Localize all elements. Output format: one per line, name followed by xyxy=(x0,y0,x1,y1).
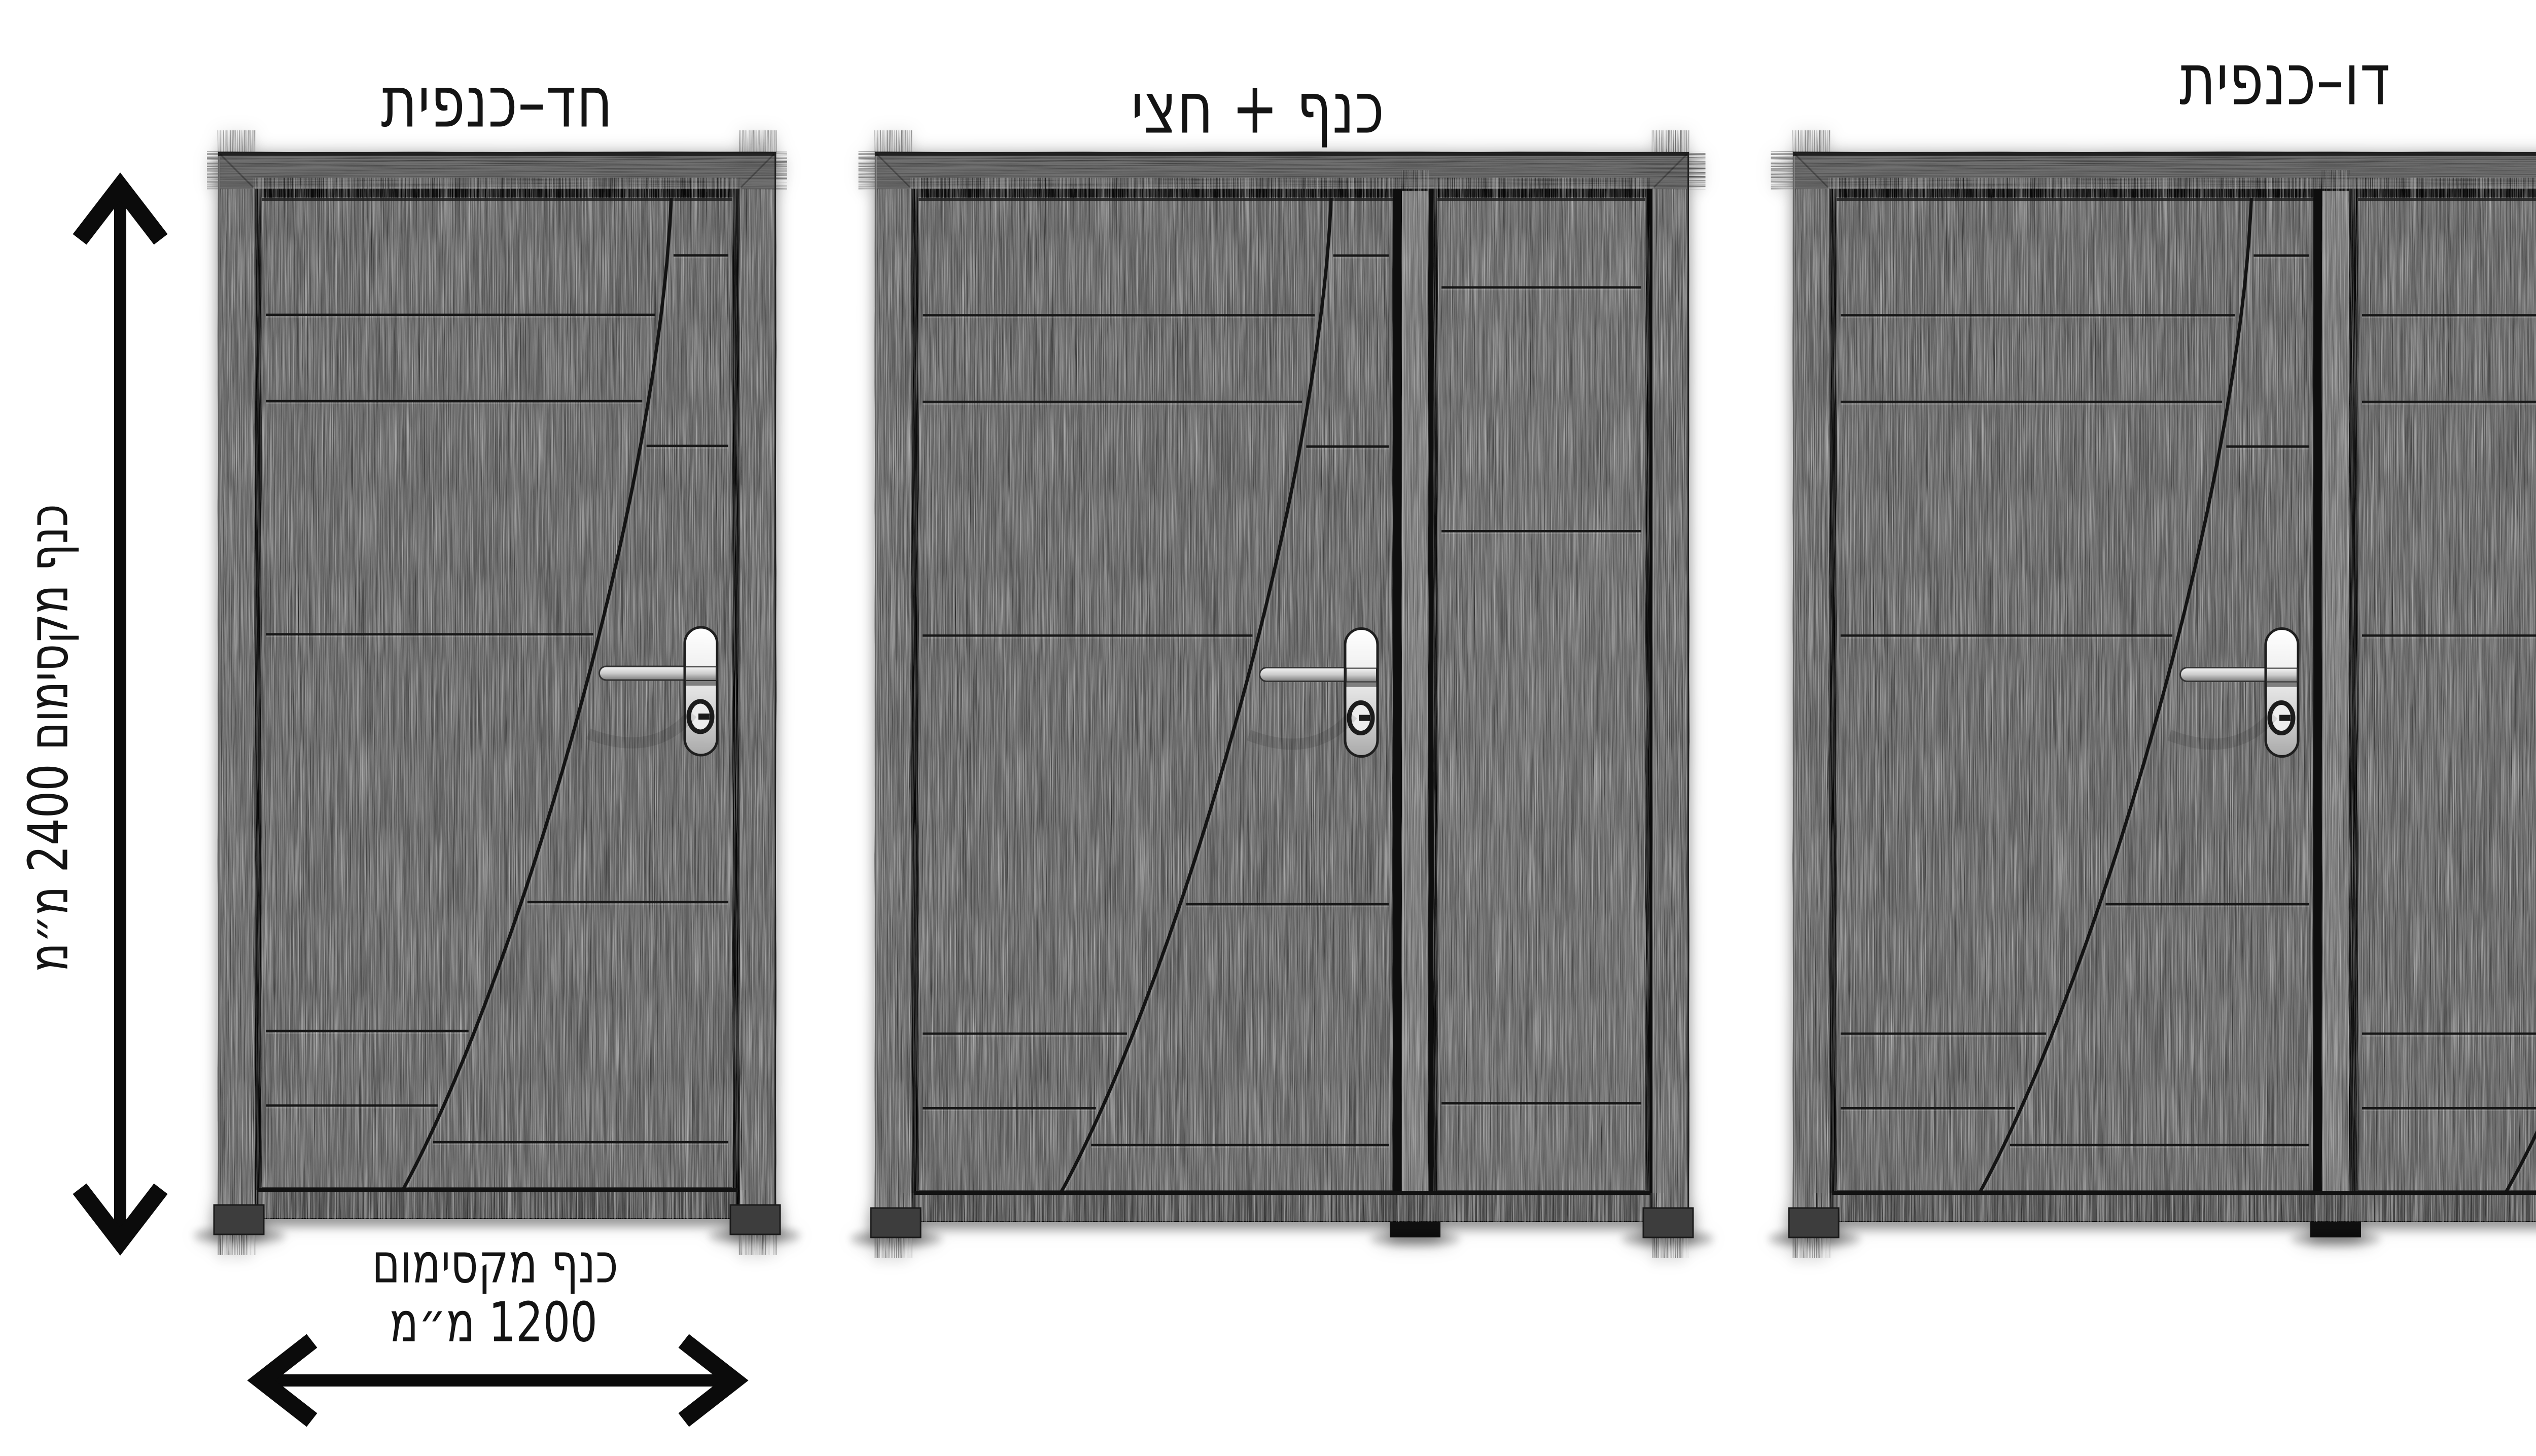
height-dimension-arrow-icon xyxy=(64,171,176,1257)
handle-lever xyxy=(2180,668,2272,682)
frame-foot xyxy=(1643,1208,1693,1237)
label-single-wing: חד–כנפית xyxy=(381,61,613,144)
door-leaf-main xyxy=(919,198,1393,1193)
door-leaf-main xyxy=(1837,198,2313,1193)
frame-foot xyxy=(214,1205,264,1234)
label-max-leaf-width-line1: כנף מקסימום xyxy=(372,1232,618,1296)
width-dimension-arrow-icon xyxy=(246,1326,750,1435)
door-assembly-single-wing xyxy=(218,152,776,1234)
door-leaf-half xyxy=(1437,198,1645,1193)
door-configurations-diagram: חד–כנפית כנף + חצי דו–כנפית כנף מקסימום … xyxy=(0,0,2536,1456)
handle-plate xyxy=(685,627,717,755)
door-leaf-main xyxy=(262,198,732,1190)
frame-foot xyxy=(1789,1208,1839,1237)
label-double-wing: דו–כנפית xyxy=(2179,39,2390,122)
door-assembly-wing-and-half xyxy=(875,152,1689,1237)
door-assembly-double-wing xyxy=(1793,152,2536,1237)
handle-lever xyxy=(1260,668,1351,682)
label-wing-and-half: כנף + חצי xyxy=(1131,67,1385,150)
frame-foot xyxy=(871,1208,921,1237)
door-leaf-main xyxy=(2358,198,2536,1193)
door-sill xyxy=(914,1194,1649,1221)
handle-plate xyxy=(2266,629,2298,757)
handle-plate xyxy=(1345,629,1378,757)
door-sill xyxy=(1833,1194,2536,1221)
handle-lever xyxy=(600,666,691,680)
frame-foot xyxy=(730,1205,780,1234)
door-sill xyxy=(258,1191,736,1218)
